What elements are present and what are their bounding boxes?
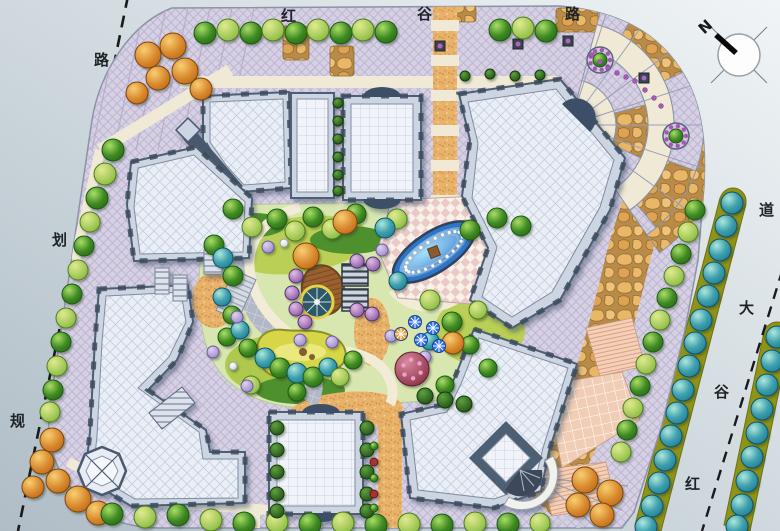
tree: [223, 199, 243, 219]
tree: [303, 207, 323, 227]
flower-dot: [599, 68, 603, 72]
tree: [623, 398, 643, 418]
tree: [697, 285, 719, 307]
tree: [160, 33, 186, 59]
tree: [40, 402, 60, 422]
tree: [370, 442, 378, 450]
tree: [285, 22, 307, 44]
tree: [51, 332, 71, 352]
tree: [56, 308, 76, 328]
flower-dot: [684, 134, 688, 138]
tree: [360, 421, 374, 435]
tree: [721, 192, 743, 214]
planter-tree: [669, 129, 683, 143]
flower-dot: [411, 376, 415, 380]
tree: [395, 352, 429, 386]
tree: [376, 244, 388, 256]
tree: [126, 82, 148, 104]
tree: [436, 376, 454, 394]
tree: [650, 310, 670, 330]
tree: [30, 450, 54, 474]
tree: [101, 503, 123, 525]
tree: [437, 392, 453, 408]
left-road-char-3: 规: [10, 412, 25, 430]
tree: [298, 315, 312, 329]
tree: [420, 290, 440, 310]
flower-dot: [402, 372, 406, 376]
flower-dot: [608, 58, 612, 62]
flower-dot: [669, 142, 673, 146]
tree: [572, 467, 598, 493]
tree: [167, 504, 189, 526]
tree: [213, 248, 233, 268]
tree: [566, 493, 590, 517]
tree: [233, 512, 255, 531]
tree: [485, 69, 495, 79]
flower-dot: [600, 48, 604, 52]
tree: [200, 509, 222, 531]
flower-dot: [598, 60, 603, 65]
tree: [194, 22, 216, 44]
tree: [731, 494, 753, 516]
tree: [267, 209, 287, 229]
tree: [280, 239, 288, 247]
tree: [431, 514, 453, 531]
flower-dot: [633, 79, 638, 84]
tree: [370, 458, 378, 466]
tree: [746, 422, 768, 444]
top-road-char-1: 红: [281, 7, 296, 25]
flower-dot: [438, 44, 443, 49]
tree: [456, 396, 472, 412]
flower-dot: [588, 61, 592, 65]
flower-dot: [606, 66, 611, 71]
umbrella: [427, 322, 440, 335]
flower-dot: [643, 88, 648, 93]
tree: [333, 134, 343, 144]
tree: [333, 170, 343, 180]
flower-dot: [516, 42, 521, 47]
tree: [288, 383, 306, 401]
tree: [285, 286, 299, 300]
tree: [333, 116, 343, 126]
tree: [86, 187, 108, 209]
tree: [611, 442, 631, 462]
tree: [530, 513, 550, 531]
tree: [240, 22, 262, 44]
tree: [657, 288, 677, 308]
tree: [487, 208, 507, 228]
tree: [678, 222, 698, 242]
tree: [511, 216, 531, 236]
tree: [74, 236, 94, 256]
tree: [68, 260, 88, 280]
tree: [464, 512, 486, 531]
tree: [756, 374, 778, 396]
tree: [365, 307, 379, 321]
tree: [242, 217, 262, 237]
tree: [94, 163, 116, 185]
tree: [751, 398, 773, 420]
tree: [22, 476, 44, 498]
tree: [370, 474, 378, 482]
right-road-char-2: 大: [739, 299, 754, 317]
tree: [270, 504, 284, 518]
top-road-char-2: 谷: [417, 5, 433, 23]
tree: [375, 218, 395, 238]
tree: [299, 513, 321, 531]
tree: [330, 22, 352, 44]
tree: [660, 425, 682, 447]
tree: [654, 449, 676, 471]
tree: [262, 241, 274, 253]
tree: [135, 42, 161, 68]
tree: [761, 350, 780, 372]
tree: [617, 420, 637, 440]
tree: [672, 379, 694, 401]
tree: [344, 351, 362, 369]
tree: [389, 272, 407, 290]
right-road-char-4: 红: [685, 475, 700, 493]
tree: [47, 356, 67, 376]
tree: [217, 19, 239, 41]
tree: [333, 152, 343, 162]
flower-dot: [593, 49, 597, 53]
tree: [332, 512, 354, 531]
flower-dot: [590, 53, 595, 58]
flower-dot: [418, 370, 422, 374]
tree: [630, 376, 650, 396]
flower-dot: [401, 363, 405, 367]
tree: [229, 362, 237, 370]
tree: [535, 20, 557, 42]
left-road-char-2: 划: [52, 231, 67, 249]
tree: [289, 302, 303, 316]
flower-dot: [659, 104, 664, 109]
tree: [664, 266, 684, 286]
tree: [134, 506, 156, 528]
tree: [597, 480, 623, 506]
tree: [666, 402, 688, 424]
umbrella: [409, 316, 422, 329]
tree: [741, 446, 763, 468]
building-north-middle: [291, 87, 421, 209]
tree: [43, 380, 63, 400]
tree: [307, 19, 329, 41]
tree: [715, 215, 737, 237]
tree: [333, 186, 343, 196]
flower-dot: [409, 358, 413, 362]
flower-dot: [566, 39, 571, 44]
building-south-middle: [269, 404, 363, 522]
right-road-char-1: 道: [759, 201, 774, 219]
tree: [333, 98, 343, 108]
tree: [417, 388, 433, 404]
umbrella: [415, 334, 428, 347]
tree: [102, 139, 124, 161]
tree: [231, 311, 243, 323]
tree: [685, 200, 705, 220]
tree: [223, 266, 243, 286]
tree: [207, 346, 219, 358]
tree: [213, 288, 231, 306]
tree: [690, 309, 712, 331]
flower-dot: [664, 130, 668, 134]
flower-dot: [675, 144, 679, 148]
tree: [270, 421, 284, 435]
flower-dot: [642, 76, 647, 81]
tree: [641, 495, 663, 517]
tree: [590, 503, 614, 527]
flower-dot: [676, 124, 680, 128]
tree: [285, 221, 305, 241]
tree: [370, 504, 378, 512]
right-road-char-3: 谷: [714, 383, 730, 401]
tree: [350, 254, 364, 268]
tree: [678, 355, 700, 377]
tree: [80, 212, 100, 232]
tree: [375, 21, 397, 43]
flower-dot: [664, 137, 668, 141]
tree: [510, 71, 520, 81]
tree: [326, 336, 338, 348]
tree: [460, 220, 480, 240]
tree: [442, 312, 462, 332]
umbrella: [433, 340, 446, 353]
flower-dot: [682, 127, 686, 131]
flower-dot: [593, 66, 597, 70]
flower-dot: [615, 71, 620, 76]
tree: [703, 262, 725, 284]
tree: [479, 359, 497, 377]
tree: [366, 257, 380, 271]
tree: [331, 368, 349, 386]
flower-dot: [652, 96, 657, 101]
tree: [294, 334, 306, 346]
flower-dot: [681, 140, 685, 144]
tree: [709, 239, 731, 261]
tree: [671, 244, 691, 264]
gravel-path-north: [433, 6, 457, 226]
flower-dot: [606, 51, 610, 55]
tree: [648, 472, 670, 494]
tree: [62, 284, 82, 304]
tree: [489, 19, 511, 41]
tree: [370, 490, 378, 498]
tree: [293, 243, 319, 269]
tree: [270, 487, 284, 501]
flower-dot: [417, 361, 421, 365]
left-road-char-1: 路: [94, 51, 110, 69]
tree: [270, 443, 284, 457]
tree: [469, 301, 487, 319]
tree: [270, 465, 284, 479]
flower-dot: [624, 75, 629, 80]
top-road-char-3: 路: [565, 5, 581, 23]
tree: [46, 469, 70, 493]
tree: [40, 428, 64, 452]
tree: [497, 513, 519, 531]
tree: [231, 321, 249, 339]
tree: [350, 303, 364, 317]
tree: [460, 71, 470, 81]
master-plan-drawing: 红 谷 路 路 划 规 道 大 谷 红 N: [0, 0, 780, 531]
site-plan-page: 红 谷 路 路 划 规 道 大 谷 红 N: [0, 0, 780, 531]
tree: [636, 354, 656, 374]
tree: [535, 70, 545, 80]
tree: [512, 17, 534, 39]
tree: [398, 513, 420, 531]
flower-dot: [669, 125, 673, 129]
tree: [146, 66, 170, 90]
tree: [352, 19, 374, 41]
tree: [289, 269, 303, 283]
umbrella: [395, 328, 408, 341]
tree: [241, 380, 253, 392]
tree: [239, 339, 257, 357]
tree: [190, 78, 212, 100]
tree: [736, 470, 758, 492]
tree: [643, 332, 663, 352]
tree: [684, 332, 706, 354]
tree: [333, 210, 357, 234]
